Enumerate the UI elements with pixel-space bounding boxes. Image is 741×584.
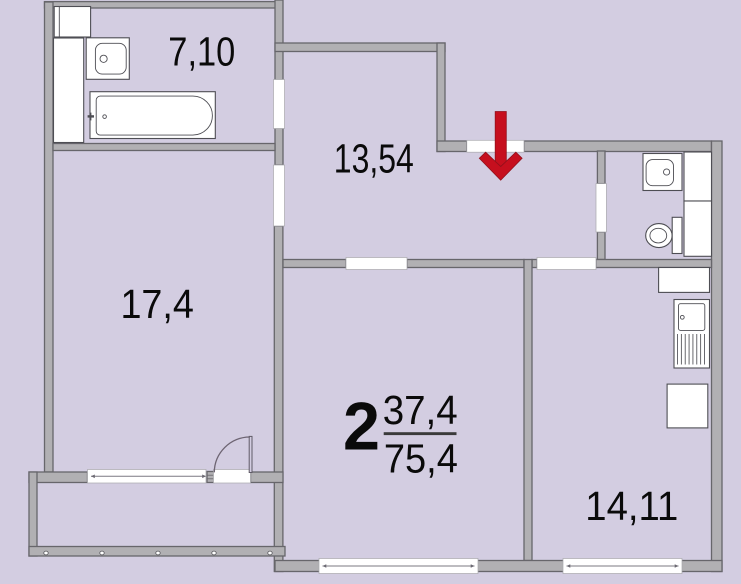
svg-text:7,10: 7,10 [168,29,235,75]
svg-text:14,11: 14,11 [585,483,678,529]
svg-text:37,4: 37,4 [383,387,458,433]
svg-text:13,54: 13,54 [334,135,414,181]
svg-text:17,4: 17,4 [120,281,194,327]
svg-text:2: 2 [343,389,380,465]
svg-text:75,4: 75,4 [384,436,458,482]
